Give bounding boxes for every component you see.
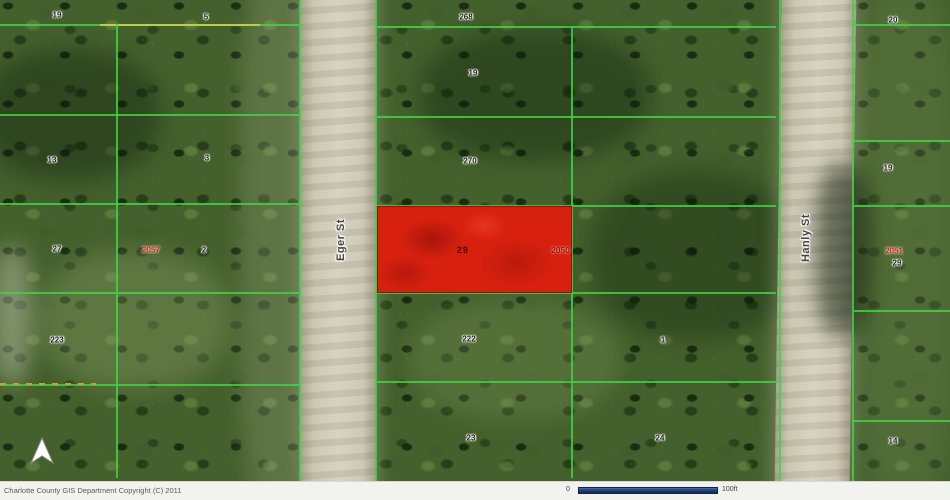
- parcel-boundary-line: [0, 292, 299, 294]
- vegetation-patch: [0, 50, 160, 180]
- parcel-boundary-line: [377, 381, 776, 383]
- lot-number-label: 222: [462, 335, 475, 344]
- vegetation-patch: [855, 0, 950, 481]
- parcel-boundary-line: [854, 24, 950, 26]
- lot-number-label: 1: [661, 336, 665, 345]
- lot-number-label: 268: [459, 13, 472, 22]
- lot-number-label: 19: [53, 11, 62, 20]
- lot-number-label: 19: [469, 69, 478, 78]
- scale-bar: [578, 487, 718, 494]
- parcel-boundary-line: [0, 384, 299, 386]
- aerial-map: 29 2050 19513327222326819270222231242019…: [0, 0, 950, 481]
- parcel-boundary-line: [854, 140, 950, 142]
- lot-number-label: 23: [467, 434, 476, 443]
- lot-number-label: 27: [53, 245, 62, 254]
- parcel-boundary-line: [377, 26, 776, 28]
- lot-number-label: 20: [889, 16, 898, 25]
- vegetation-patch: [590, 170, 800, 340]
- lot-number-label: 19: [884, 164, 893, 173]
- parcel-boundary-line-dashed: [0, 383, 96, 385]
- vegetation-patch: [420, 30, 650, 160]
- parcel-boundary-line: [0, 24, 299, 26]
- road-hanly-st: [775, 0, 857, 481]
- highlighted-parcel: 29 2050: [377, 206, 572, 293]
- scale-distance-label: 100ft: [722, 486, 738, 493]
- lot-number-label: 5: [204, 13, 208, 22]
- sandy-trail-patch: [0, 245, 32, 385]
- vegetation-patch: [40, 250, 230, 390]
- lot-number-label: 13: [48, 156, 57, 165]
- parcel-boundary-line: [0, 114, 299, 116]
- parcel-boundary-line: [377, 116, 776, 118]
- north-arrow-icon: [28, 436, 56, 466]
- lot-number-label: 3: [205, 154, 209, 163]
- lot-number-label: 29: [893, 259, 902, 268]
- parcel-boundary-line: [854, 420, 950, 422]
- parcel-boundary-line: [854, 205, 950, 207]
- copyright-text: Charlotte County GIS Department Copyrigh…: [4, 486, 181, 495]
- footer-bar: Charlotte County GIS Department Copyrigh…: [0, 481, 950, 500]
- scale-zero-label: 0: [566, 486, 570, 493]
- parcel-boundary-line-yellow: [100, 24, 260, 26]
- parcel-boundary-line: [854, 310, 950, 312]
- address-label: 2057: [142, 246, 160, 255]
- street-label-hanly: Hanly St: [800, 214, 812, 262]
- vegetation-patch: [410, 300, 620, 420]
- highlighted-parcel-lot-number: 29: [457, 245, 469, 255]
- lot-number-label: 24: [656, 434, 665, 443]
- parcel-boundary-line: [116, 24, 118, 478]
- address-label: 2051: [885, 247, 903, 256]
- street-label-eger: Eger St: [335, 219, 347, 261]
- lot-number-label: 270: [463, 157, 476, 166]
- highlighted-parcel-address: 2050: [551, 245, 570, 255]
- parcel-boundary-line: [0, 203, 299, 205]
- lot-number-label: 223: [50, 336, 63, 345]
- lot-number-label: 2: [202, 246, 206, 255]
- lot-number-label: 14: [889, 437, 898, 446]
